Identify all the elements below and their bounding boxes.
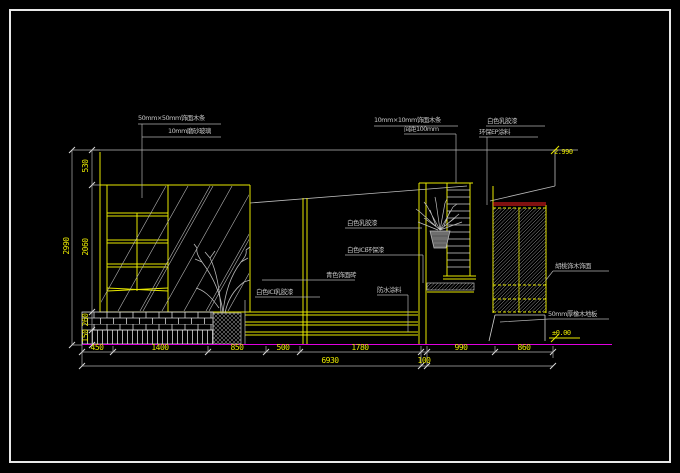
annotation-ici-latex: 白色ICI乳胶漆 [256,289,293,296]
elevation-drawing [0,0,680,473]
annotation-wood-strip-50: 50mm×50mm饰面木条 [138,115,205,122]
annotation-waterproof: 防水涂料 [377,287,401,294]
annotation-white-latex-top: 白色乳胶漆 [487,118,517,125]
annotation-wood-floor: 50mm厚橡木地板 [548,311,597,318]
annotation-ep-coating: 环保EP涂料 [479,129,510,136]
dim-850: 850 [215,344,259,352]
annotation-white-latex-mid: 白色乳胶漆 [347,220,377,227]
ceiling-lines [92,150,578,203]
partition [419,183,473,344]
dim-530: 530 [82,144,90,188]
cad-elevation-canvas: 450 1400 850 500 1780 990 860 6930 100 5… [0,0,680,473]
planter-box [213,313,241,344]
annotation-tile: 青色饰面砖 [326,272,356,279]
annotation-wood-strip-10: 10mm×10mm饰面木条 [374,117,441,124]
steps [245,312,418,335]
dim-total-6930: 6930 [308,357,352,365]
dim-150: 150 [82,314,90,358]
annotation-ici-paint: 白色ICI环保漆 [347,247,384,254]
hanging-bench [427,283,474,292]
level-bottom: ±0.00 [552,330,571,337]
dim-2060: 2060 [82,225,90,269]
dim-500: 500 [261,344,305,352]
annotation-spacing-100: 间距100mm [404,126,439,133]
dim-990: 990 [439,344,483,352]
dim-1400: 1400 [138,344,182,352]
dim-860: 860 [502,344,546,352]
level-top: 2.990 [554,149,573,156]
annotation-wood-veneer: 胡桃饰木饰面 [555,263,591,270]
plant-2 [416,197,462,248]
dim-gap-100: 100 [402,357,446,365]
annotation-frosted-glass: 10mm磨砂玻璃 [168,128,211,135]
dim-total-2990: 2990 [63,224,71,268]
right-hatch-panel [489,186,546,341]
brick-base [82,312,213,344]
dim-1780: 1780 [338,344,382,352]
